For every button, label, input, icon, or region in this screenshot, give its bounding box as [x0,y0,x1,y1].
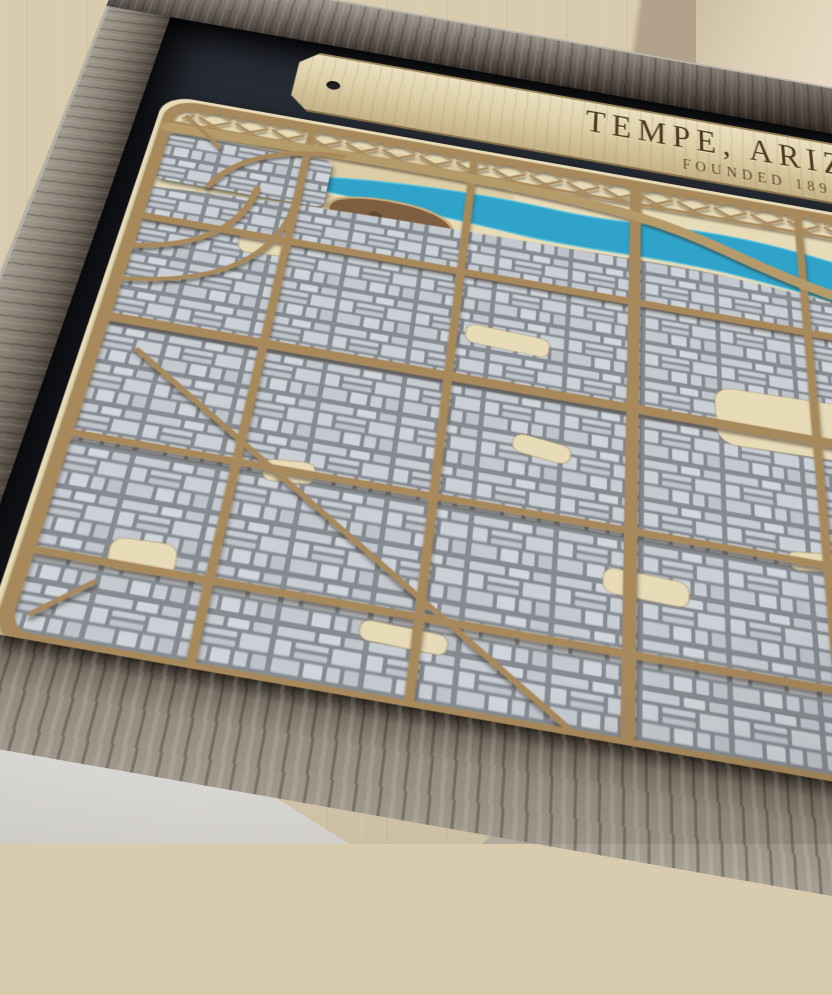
framed-map-artwork: TEMPE, ARIZONA FOUNDED 1894 [0,0,832,995]
photo-of-wood-map: { "artwork": { "description": "Laser-cut… [0,0,832,844]
plaque-hole [326,80,341,91]
scene: TEMPE, ARIZONA FOUNDED 1894 [0,0,832,844]
